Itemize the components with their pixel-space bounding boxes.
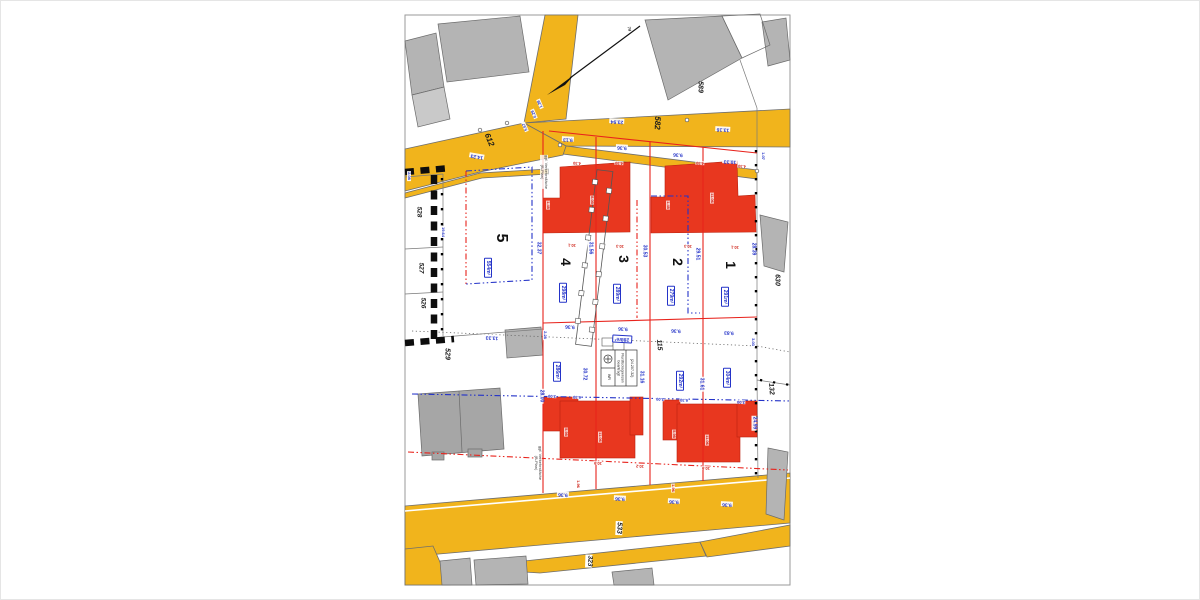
dimension-label: 9.36 [670,327,682,333]
plot-area-label: 554m² [484,258,492,278]
building-dim: 11.06 [705,435,709,446]
dimension-label: 6.30 [573,395,582,399]
dimension-label: 9.83 [723,329,735,335]
dimension-label: 13.33 [485,334,500,340]
dimension-label: 19.64 [441,226,445,238]
building-dim: 10.2 [636,464,645,468]
planned-building-southwest [630,397,643,435]
parcel-number: 132 [767,383,775,395]
dimension-label: 9.36 [668,498,680,504]
existing-building [418,388,504,456]
plot-area-label: 292m² [676,371,684,391]
dimension-label: 9.13 [562,136,574,142]
building-dim: 5.98 [564,428,568,437]
dimension-label: 9.36 [557,491,569,497]
building-dim: 8.05 [590,196,594,205]
dimension-label: 3.03 [751,337,755,347]
stamp-zone-label: WR [606,374,610,380]
parcel-number: 589 [697,81,704,93]
plot-area-label: 291m² [721,287,729,307]
building-dim: 5.98 [672,430,676,439]
dimension-label: 10.33 [723,158,738,164]
dimension-label: 2.08 [407,171,411,181]
building-dim: 4.30 [738,164,747,168]
building-dim: 10.1 [568,243,577,247]
cadastral-map-canvas [0,0,1200,600]
dimension-label: 31.16 [639,370,644,385]
building-dim: 11.06 [710,193,714,204]
dimension-label: 30.53 [642,244,647,259]
dimension-label: 30.72 [582,367,587,382]
building-dim: 10.9 [702,466,711,470]
plot-number-5: 5 [493,234,509,243]
dimension-label: 9.36 [564,323,576,329]
building-dim: 4.30 [573,161,582,165]
building-dim: 10.3 [616,244,625,248]
planned-building-southeast [677,404,740,462]
building-dim: 1.96 [671,484,675,493]
dimension-label: 13.16 [716,126,731,132]
dimension-label: 24.99 [752,416,757,431]
existing-building [766,448,788,520]
plot-area-label: 298m² [559,283,567,303]
traffic-area-note: ggf. Verkehrsfläche (B-Plan) [534,446,542,480]
building-dim: 1.48 [666,201,670,210]
plot-number-4: 4 [559,258,573,266]
parcel-number: 323 [586,554,593,567]
building-dim: 11.06 [598,432,602,443]
plot-number-3: 3 [617,255,631,263]
building-dim: 1.96 [576,480,580,489]
plot-area-label: 279m² [667,286,675,306]
dimension-label: 2.00 [656,397,665,401]
building-dim: 1.48 [546,201,550,210]
stamp-ref-label: (24.207-32) [629,359,633,378]
parcel-number: 526 [419,298,426,309]
plot-area-label: 304m² [723,368,731,388]
dimension-label: 9.36 [672,151,684,157]
dimension-label: 1.07 [761,151,765,161]
dimension-label: 3.00 [737,400,746,404]
parcel-number-road: 533 [615,521,622,535]
plot-number-2: 2 [671,258,685,266]
parcel-number: 115 [655,339,663,351]
building-dim: 4.30 [696,161,705,165]
building-dim: 4.30 [615,161,624,165]
stamp-note-label: Flurstücksgrenzen beantragt [616,353,623,382]
dimension-label: 31.56 [588,241,593,256]
building-dim: 10.1 [731,245,740,249]
parcel-number: 528 [415,207,422,218]
existing-building [760,215,788,272]
parcel-number: 529 [444,348,451,360]
dimension-label: 2.28 [543,330,547,340]
dimension-label: 9.36 [616,144,628,150]
dimension-label: 28.00 [539,389,544,404]
existing-building [474,556,528,585]
building-dim: 10.9 [594,461,603,465]
existing-building [440,558,472,585]
parcel-number: 630 [774,274,781,286]
dimension-label: 9.36 [617,325,629,331]
plot-area-label: 289m² [613,284,621,304]
dimension-label: 31.61 [699,377,704,392]
plot-area-label: 288m² [612,334,633,343]
dimension-label: 28.39 [751,242,756,257]
existing-building [438,16,529,82]
dimension-label: 9.36 [614,495,626,501]
dimension-label: 23.94 [610,118,625,124]
parcel-number: 527 [417,263,424,274]
plot-area-label: 286m² [553,362,561,382]
dimension-label: 29.51 [695,247,700,262]
dimension-label: 6.30 [680,398,689,402]
plot-number-1: 1 [724,261,738,269]
parcel-number-road: 582 [653,116,661,130]
site-plan-page: 612 582 589 74 630 132 115 529 528 527 5… [0,0,1200,600]
planned-building-southwest [560,401,635,458]
building-dim: 10.3 [684,244,693,248]
dimension-label: 9.36 [721,501,733,507]
dimension-label: 3.00 [548,394,557,398]
dimension-label: 32.37 [536,241,541,256]
traffic-area-note: ggf. Verkehrsfläche (B-Plan) [540,155,548,189]
